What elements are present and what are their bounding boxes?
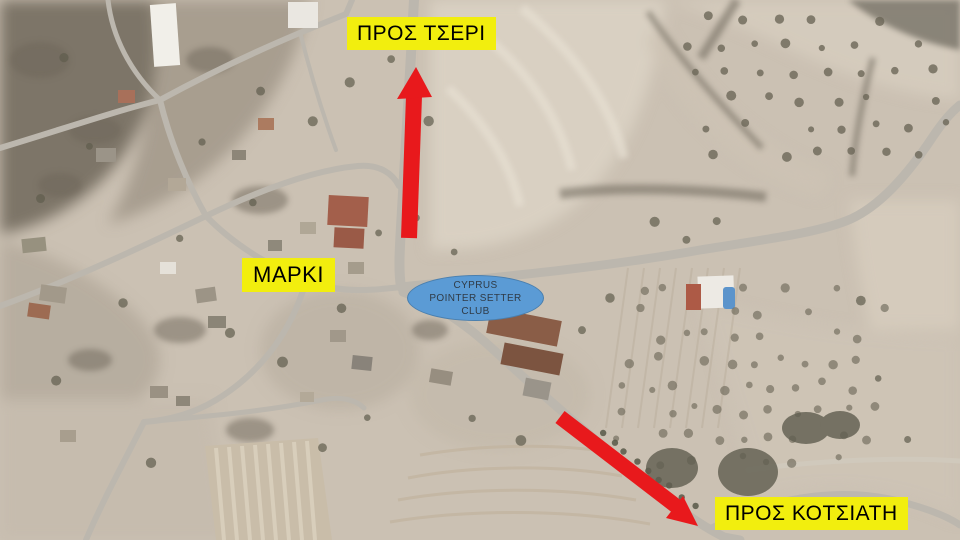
- label-pros-tseri: ΠΡΟΣ ΤΣΕΡΙ: [347, 17, 496, 50]
- club-badge-line-1: CYPRUS: [453, 279, 497, 292]
- club-badge-line-3: CLUB: [461, 305, 489, 318]
- club-badge-line-2: POINTER SETTER: [429, 292, 521, 305]
- club-badge: CYPRUS POINTER SETTER CLUB: [407, 275, 544, 321]
- label-pros-kotsiati: ΠΡΟΣ ΚΟΤΣΙΑΤΗ: [715, 497, 908, 530]
- satellite-basemap: [0, 0, 960, 540]
- label-marki: ΜΑΡΚΙ: [242, 258, 335, 292]
- annotated-satellite-map: ΠΡΟΣ ΤΣΕΡΙ ΜΑΡΚΙ ΠΡΟΣ ΚΟΤΣΙΑΤΗ CYPRUS PO…: [0, 0, 960, 540]
